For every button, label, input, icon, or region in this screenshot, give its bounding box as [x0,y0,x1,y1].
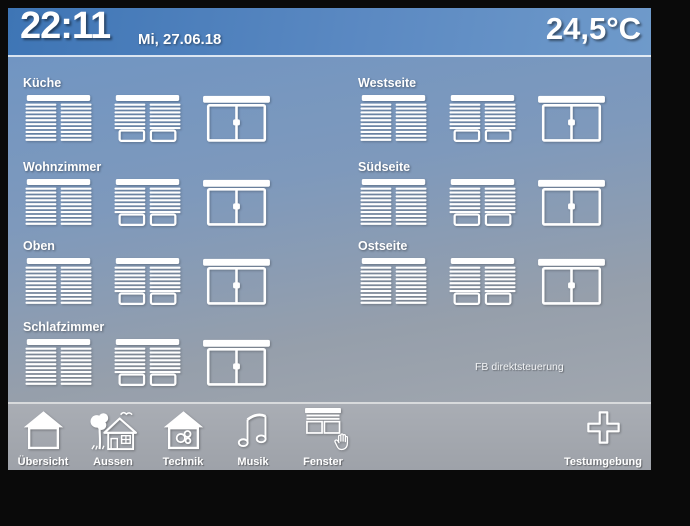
blind-row [24,258,271,306]
hand-icon [333,431,352,453]
section-wohnzimmer: Wohnzimmer [22,160,271,227]
blind-closed-button[interactable] [24,339,93,387]
closed-blind-icon [24,339,93,387]
toolbar-icon-wrap [585,407,622,448]
partial-blind-icon [448,95,517,143]
toolbar-item-technik[interactable]: Technik [148,404,218,470]
closed-blind-icon [24,258,93,306]
toolbar-item-testumgebung[interactable]: Testumgebung [559,404,647,470]
blind-closed-button[interactable] [24,95,93,143]
toolbar-icon-wrap [22,407,65,453]
temperature: 24,5°C [546,11,641,47]
section-westseite: Westseite [357,76,606,143]
toolbar-item-fenster[interactable]: Fenster [288,404,358,470]
closed-blind-icon [359,179,428,227]
open-blind-icon [537,258,606,306]
toolbar-item-label: Aussen [93,456,133,468]
blind-partial-button[interactable] [113,339,182,387]
blind-partial-button[interactable] [448,258,517,306]
section-label: Oben [23,239,271,253]
section-label: Wohnzimmer [23,160,271,174]
section-label: Westseite [358,76,606,90]
blind-closed-button[interactable] [359,258,428,306]
open-blind-icon [537,95,606,143]
open-blind-icon [537,179,606,227]
blind-open-button[interactable] [537,179,606,227]
closed-blind-icon [359,95,428,143]
status-header: 22:11 Mi, 27.06.18 24,5°C [8,8,651,57]
date: Mi, 27.06.18 [138,31,221,48]
partial-blind-icon [448,179,517,227]
toolbar-item-label: Technik [163,456,204,468]
closed-blind-icon [24,179,93,227]
blind-open-button[interactable] [202,95,271,143]
partial-blind-icon [113,258,182,306]
garden-house-icon [87,407,139,451]
blind-partial-button[interactable] [448,95,517,143]
partial-blind-icon [113,179,182,227]
blind-closed-button[interactable] [24,179,93,227]
open-blind-icon [202,258,271,306]
blind-partial-button[interactable] [113,179,182,227]
toolbar-item-label: Testumgebung [564,456,642,468]
house-icon [22,407,65,453]
house-gears-icon [162,407,205,453]
closed-blind-icon [24,95,93,143]
blind-partial-button[interactable] [448,179,517,227]
section-kueche: Küche [22,76,271,143]
open-blind-icon [202,95,271,143]
blind-row [359,258,606,306]
toolbar-icon-wrap [162,407,205,453]
section-label: Küche [23,76,271,90]
toolbar-item-aussen[interactable]: Aussen [78,404,148,470]
bottom-toolbar: ÜbersichtAussenTechnikMusikFensterTestum… [8,402,651,470]
music-notes-icon [233,407,274,451]
toolbar-item-label: Fenster [303,456,343,468]
blind-open-button[interactable] [537,95,606,143]
toolbar-item-musik[interactable]: Musik [218,404,288,470]
blind-open-button[interactable] [537,258,606,306]
section-label: Südseite [358,160,606,174]
open-blind-icon [202,179,271,227]
section-schlafzimmer: Schlafzimmer [22,320,271,387]
blind-row [24,179,271,227]
blind-open-button[interactable] [202,179,271,227]
blind-open-button[interactable] [202,258,271,306]
blind-closed-button[interactable] [24,258,93,306]
toolbar-item-label: Musik [237,456,268,468]
toolbar-item-label: Übersicht [18,456,69,468]
section-ostseite: Ostseite [357,239,606,306]
toolbar-item-uebersicht[interactable]: Übersicht [8,404,78,470]
blind-row [24,339,271,387]
blind-closed-button[interactable] [359,179,428,227]
touch-panel-screen: 22:11 Mi, 27.06.18 24,5°C KücheWohnzimme… [8,8,651,470]
section-oben: Oben [22,239,271,306]
blind-row [359,179,606,227]
partial-blind-icon [113,339,182,387]
toolbar-icon-wrap [233,407,274,451]
blind-row [24,95,271,143]
closed-blind-icon [359,258,428,306]
partial-blind-icon [113,95,182,143]
section-label: Ostseite [358,239,606,253]
partial-blind-icon [448,258,517,306]
fb-direktsteuerung-label: FB direktsteuerung [475,361,564,373]
section-label: Schlafzimmer [23,320,271,334]
blind-row [359,95,606,143]
clock: 22:11 [20,5,110,48]
blind-open-button[interactable] [202,339,271,387]
open-blind-icon [202,339,271,387]
section-suedseite: Südseite [357,160,606,227]
blind-partial-button[interactable] [113,95,182,143]
toolbar-icon-wrap [87,407,139,451]
blind-partial-button[interactable] [113,258,182,306]
plus-icon [585,407,622,448]
blind-closed-button[interactable] [359,95,428,143]
